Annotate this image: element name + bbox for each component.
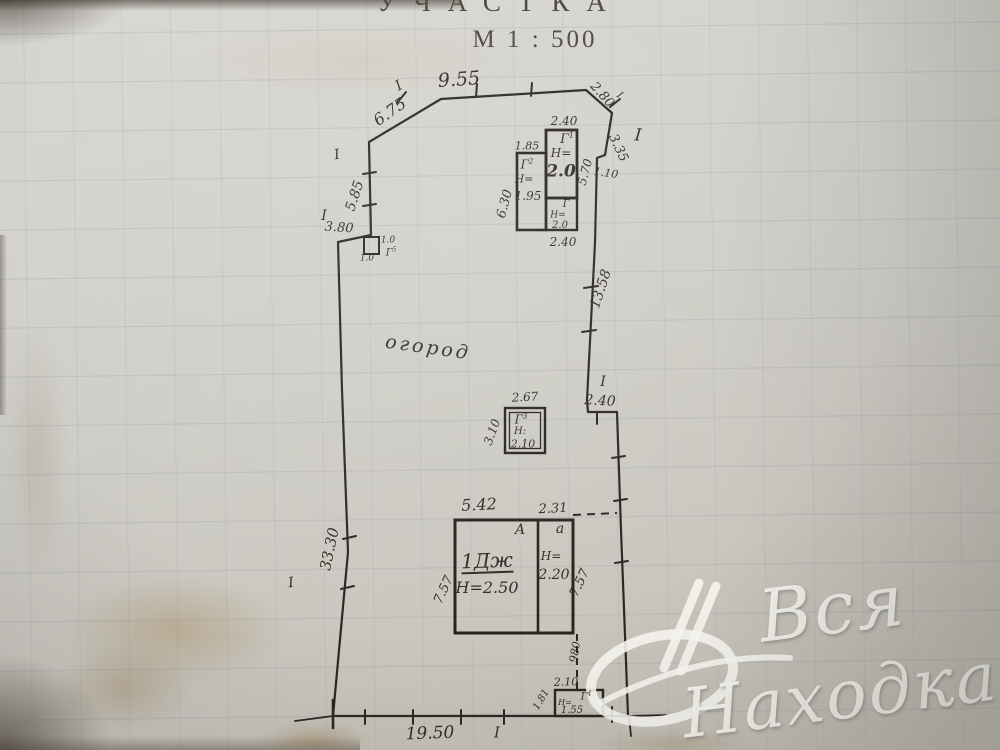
g2-label: Г2	[521, 158, 534, 171]
g-annex-height: 2.0	[552, 221, 568, 231]
g4-label: Г4	[581, 691, 592, 702]
g-annex-label: Г	[563, 200, 570, 210]
g3-width-top: 2.67	[511, 390, 538, 403]
g3-label: Г3	[515, 413, 528, 426]
dim-top: 9.55	[437, 69, 481, 91]
house-height-note: Н=2.50	[456, 580, 519, 596]
survey-marker: I	[287, 576, 294, 591]
g5-dim-right: 1.0	[381, 237, 395, 246]
house-annex-height-prefix: Н=	[541, 550, 562, 562]
dim-right-step: 2.40	[584, 393, 616, 409]
dim-right-jog: 1.10	[593, 166, 619, 180]
g2-width-top: 1.85	[515, 141, 540, 152]
g2-height-prefix: Н=	[515, 174, 534, 185]
buildings-outlines	[364, 130, 603, 716]
g2-height: 1.95	[515, 190, 542, 202]
g4-gate-dim: 980	[568, 641, 582, 664]
g1-height: 2.0	[546, 164, 576, 181]
dim-left-step: 3.80	[324, 221, 354, 236]
g1-width-top: 2.40	[551, 115, 578, 127]
house-width-main: 5.42	[461, 496, 497, 514]
g4-height: 1.55	[561, 706, 583, 716]
photographed-site-plan: УЧАСТКА М 1 : 500 6.75 9.55 2.80 3.35 1.…	[0, 0, 1000, 750]
g3-height: 2.10	[511, 439, 536, 450]
house-name: 1Дж	[461, 550, 513, 575]
dim-bottom: 19.50	[405, 725, 454, 744]
g1-width-bottom: 2.40	[550, 236, 577, 248]
house-annex-height: 2.20	[538, 568, 569, 582]
survey-marker: I	[600, 375, 606, 389]
g1-height-prefix: Н=	[551, 147, 572, 159]
house-room-letter-big: А	[515, 523, 526, 537]
g3-height-prefix: Н:	[514, 427, 526, 437]
page-title: УЧАСТКА	[0, 0, 1000, 16]
g4-width-top: 2.10	[554, 676, 579, 688]
house-room-letter-small: а	[556, 522, 564, 536]
g5-dim-bottom: 1.0	[360, 255, 374, 264]
watermark-word-1: Вся	[754, 557, 910, 658]
scale-label: М 1 : 500	[430, 27, 640, 52]
house-width-annex: 2.31	[538, 502, 568, 516]
survey-marker: I	[634, 127, 642, 145]
survey-marker: I	[494, 726, 500, 741]
g5-label: Г5	[386, 247, 397, 258]
g1-label: Г1	[560, 132, 574, 146]
survey-marker: I	[321, 209, 327, 223]
